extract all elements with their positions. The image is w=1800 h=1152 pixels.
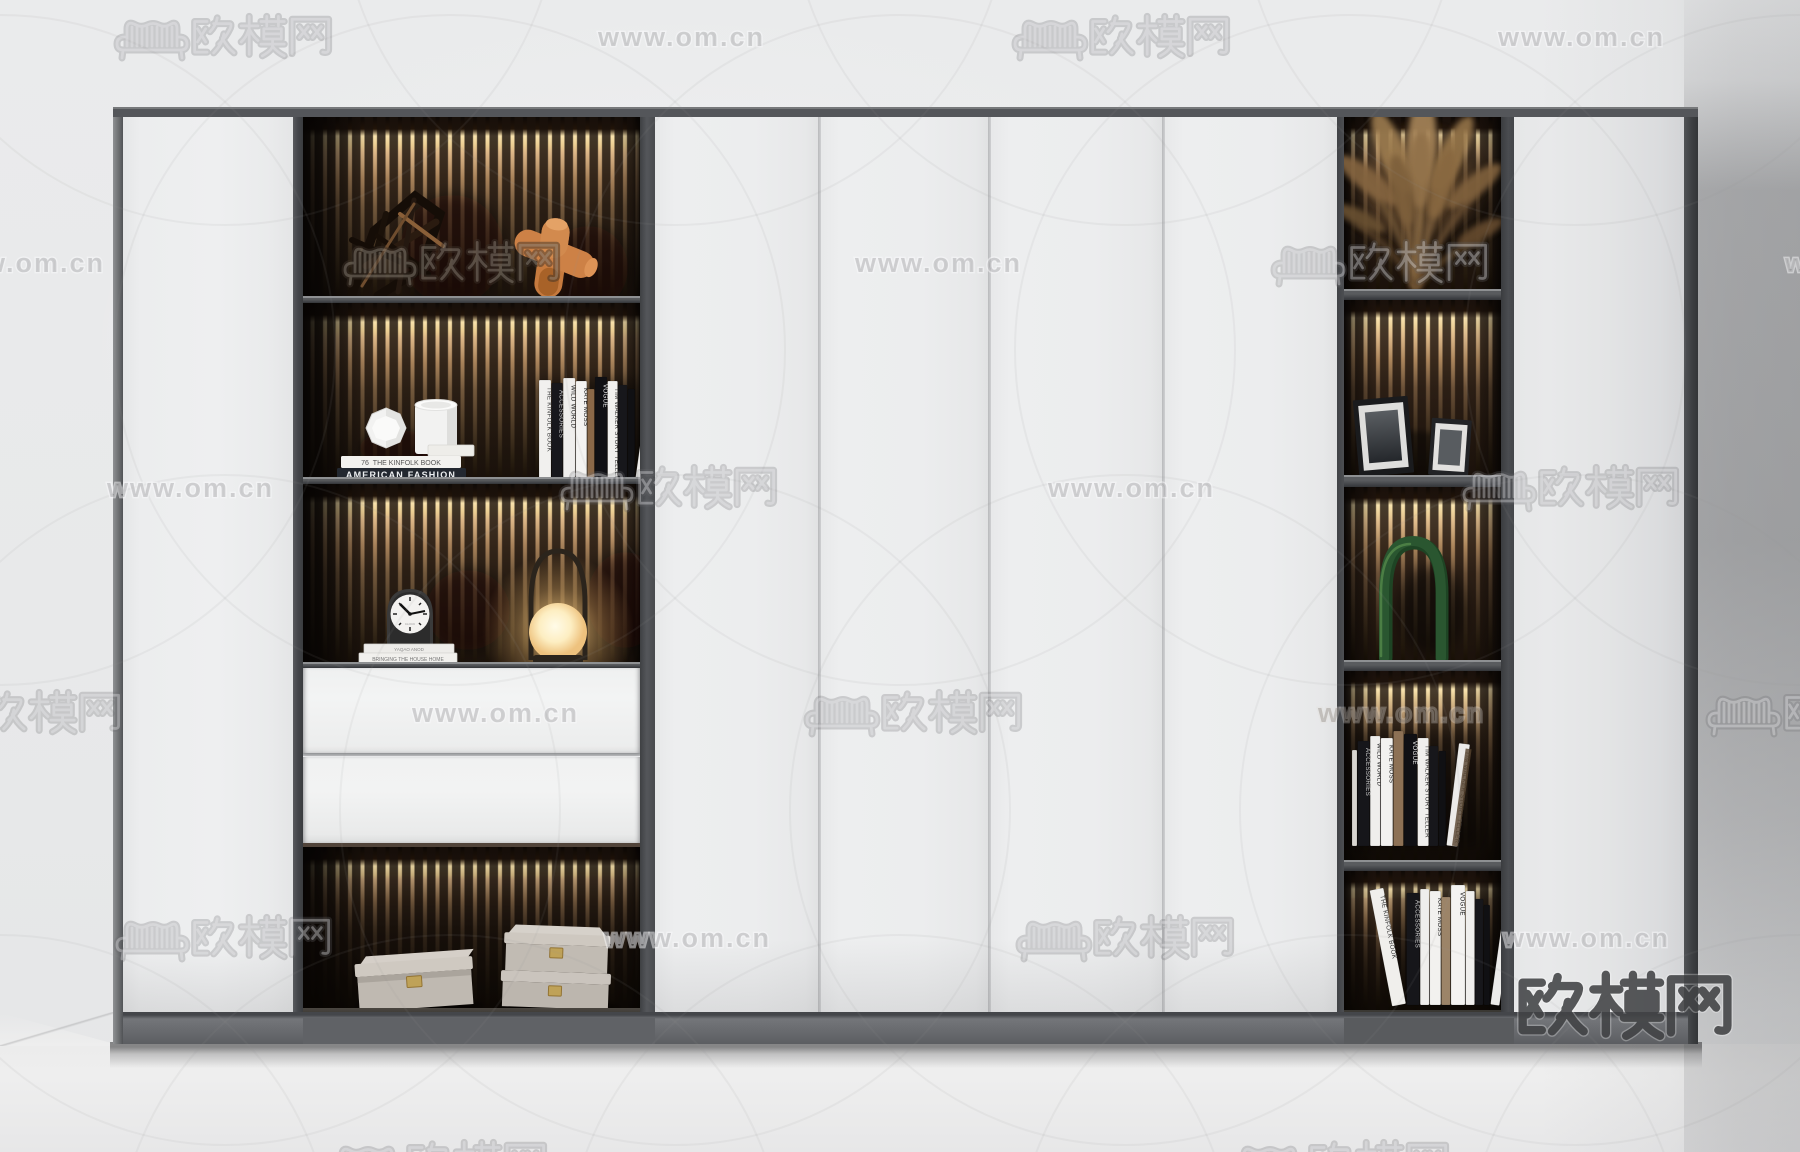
svg-text:www.om.cn: www.om.cn [1047,473,1215,503]
svg-text:www.om.cn: www.om.cn [854,248,1022,278]
svg-text:www.om.cn: www.om.cn [1784,248,1800,278]
svg-text:www.om.cn: www.om.cn [411,698,579,728]
svg-text:www.om.cn: www.om.cn [603,923,771,953]
svg-text:www.om.cn: www.om.cn [1317,698,1485,728]
svg-text:www.om.cn: www.om.cn [869,1148,1037,1152]
svg-text:www.om.cn: www.om.cn [597,22,765,52]
svg-text:www.om.cn: www.om.cn [0,1148,137,1152]
svg-text:www.om.cn: www.om.cn [106,473,274,503]
svg-text:www.om.cn: www.om.cn [0,248,105,278]
svg-text:www.om.cn: www.om.cn [1502,923,1670,953]
svg-text:www.om.cn: www.om.cn [1497,22,1665,52]
